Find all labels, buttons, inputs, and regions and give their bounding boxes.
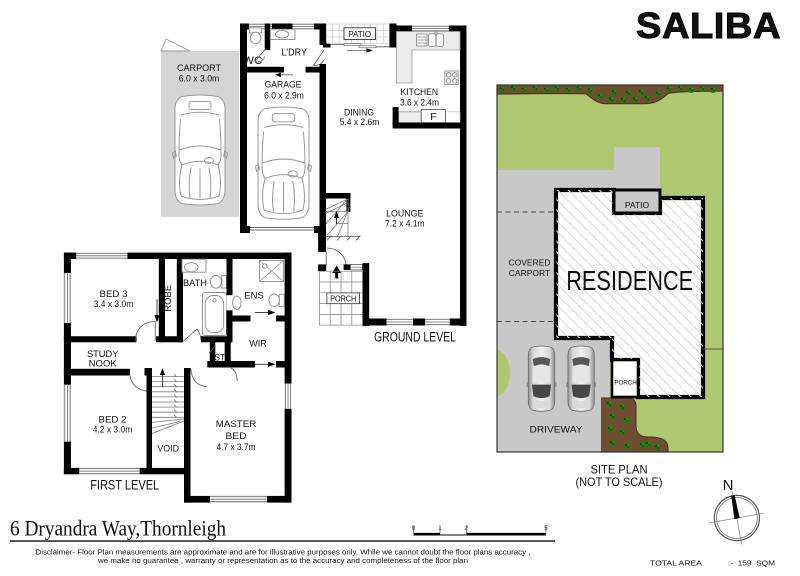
svg-text:5.4 x 2.6m: 5.4 x 2.6m xyxy=(340,117,380,128)
svg-text:PORCH: PORCH xyxy=(614,380,636,387)
svg-text:KITCHEN: KITCHEN xyxy=(401,87,439,97)
svg-text:BATH: BATH xyxy=(183,278,207,289)
svg-text:TOTAL AREA: TOTAL AREA xyxy=(650,559,702,568)
svg-text:PATIO: PATIO xyxy=(348,29,371,39)
svg-text:GROUND LEVEL: GROUND LEVEL xyxy=(374,330,456,345)
svg-text:RESIDENCE: RESIDENCE xyxy=(566,265,693,296)
svg-text:GARAGE: GARAGE xyxy=(265,80,302,91)
svg-text:MASTER: MASTER xyxy=(216,419,257,430)
svg-text:7.2 x 4.1m: 7.2 x 4.1m xyxy=(385,218,425,229)
svg-text:6 Dryandra Way,Thornleigh: 6 Dryandra Way,Thornleigh xyxy=(10,516,226,541)
svg-text:(NOT TO SCALE): (NOT TO SCALE) xyxy=(576,475,663,489)
svg-text:3.6 x 2.4m: 3.6 x 2.4m xyxy=(400,97,439,108)
svg-text::- 159 SQM: :- 159 SQM xyxy=(728,559,775,568)
svg-text:SALIBA: SALIBA xyxy=(636,5,781,46)
svg-text:DRIVEWAY: DRIVEWAY xyxy=(530,425,584,436)
svg-text:4.2 x 3.0m: 4.2 x 3.0m xyxy=(93,424,133,435)
svg-text:L'DRY: L'DRY xyxy=(281,48,307,59)
svg-text:PATIO: PATIO xyxy=(625,200,650,210)
svg-text:F: F xyxy=(430,111,436,123)
svg-text:ROBE: ROBE xyxy=(163,285,174,312)
svg-text:CARPORT: CARPORT xyxy=(509,268,550,278)
svg-text:COVERED: COVERED xyxy=(508,258,550,268)
svg-text:WIR: WIR xyxy=(249,338,267,349)
svg-text:Disclaimer- Floor Plan measure: Disclaimer- Floor Plan measurements are … xyxy=(36,550,531,557)
svg-text:N: N xyxy=(723,477,734,494)
svg-text:BED: BED xyxy=(226,431,247,442)
svg-text:PORCH: PORCH xyxy=(330,294,356,304)
svg-text:ST: ST xyxy=(214,352,225,363)
svg-text:CARPORT: CARPORT xyxy=(177,63,221,74)
svg-text:FIRST LEVEL: FIRST LEVEL xyxy=(90,478,159,493)
svg-text:NOOK: NOOK xyxy=(89,359,118,370)
svg-text:ENS: ENS xyxy=(244,290,264,301)
svg-text:6.0 x 3.0m: 6.0 x 3.0m xyxy=(179,74,220,85)
svg-text:6.0 x 2.9m: 6.0 x 2.9m xyxy=(264,91,304,102)
svg-text:we make no guarantee , warrant: we make no guarantee , warranty or repre… xyxy=(97,558,468,565)
svg-text:VOID: VOID xyxy=(157,443,179,454)
svg-text:4.7 x 3.7m: 4.7 x 3.7m xyxy=(217,442,256,453)
svg-text:3.4 x 3.0m: 3.4 x 3.0m xyxy=(94,299,134,310)
